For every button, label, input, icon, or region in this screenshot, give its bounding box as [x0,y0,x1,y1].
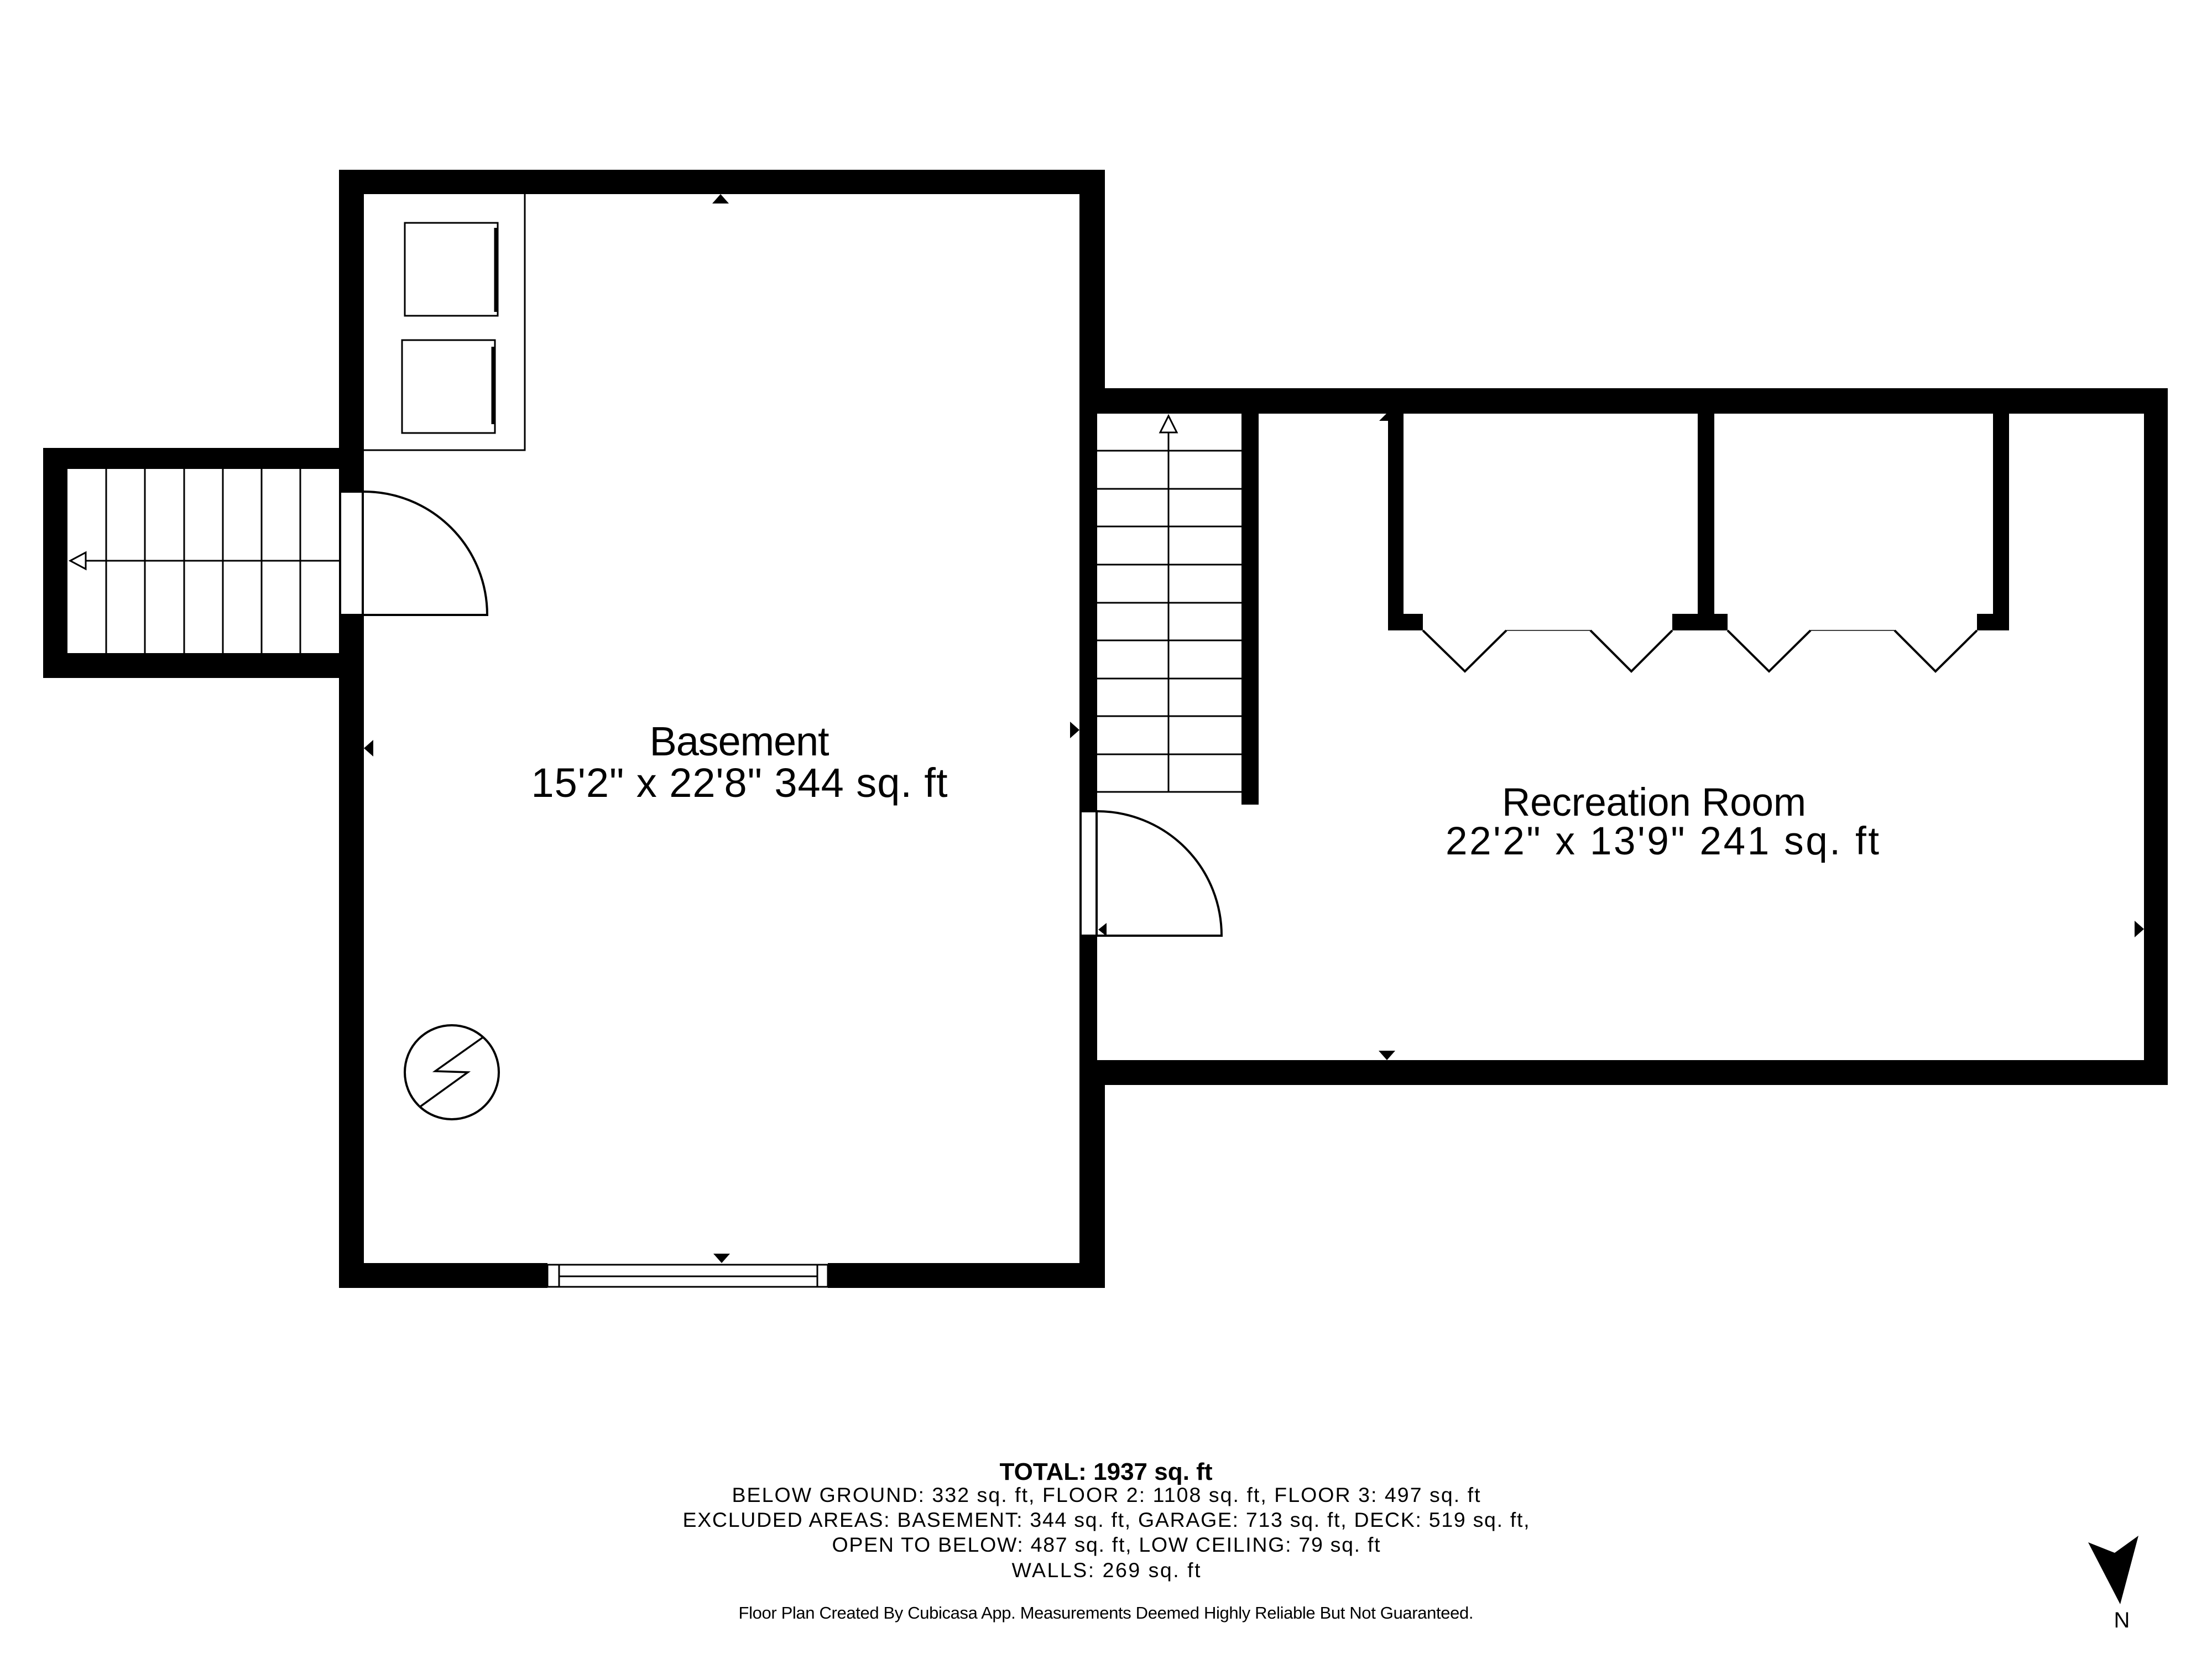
svg-text:BELOW GROUND: 332 sq. ft, FLOO: BELOW GROUND: 332 sq. ft, FLOOR 2: 1108 … [732,1483,1481,1506]
svg-text:Floor Plan Created By Cubicasa: Floor Plan Created By Cubicasa App. Meas… [739,1603,1474,1623]
svg-text:TOTAL: 1937 sq. ft: TOTAL: 1937 sq. ft [1000,1458,1213,1485]
svg-text:EXCLUDED AREAS: BASEMENT: 344: EXCLUDED AREAS: BASEMENT: 344 sq. ft, GA… [683,1508,1530,1531]
svg-text:Basement: Basement [650,718,830,764]
svg-text:22'2" x 13'9" 241 sq. ft: 22'2" x 13'9" 241 sq. ft [1446,820,1879,863]
svg-text:N: N [2114,1608,2130,1632]
svg-text:Recreation Room: Recreation Room [1502,781,1806,825]
svg-text:15'2" x 22'8" 344 sq. ft: 15'2" x 22'8" 344 sq. ft [531,760,948,806]
